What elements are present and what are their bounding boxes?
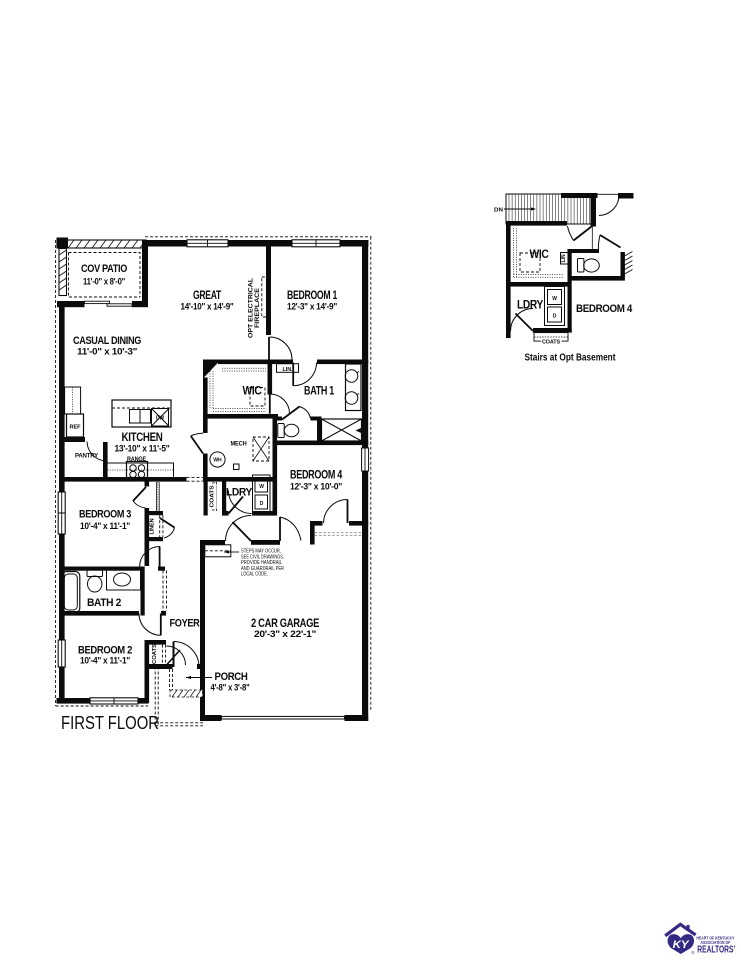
svg-text:PORCH: PORCH [215,671,248,683]
svg-text:COV PATIO: COV PATIO [81,263,128,275]
svg-text:COATS: COATS [210,485,216,508]
svg-text:FIRST FLOOR: FIRST FLOOR [61,713,159,733]
svg-text:LINEN: LINEN [150,518,156,535]
svg-text:13'-10" x 11'-5": 13'-10" x 11'-5" [115,444,170,454]
svg-text:COATS: COATS [542,340,561,346]
svg-text:REALTORS’: REALTORS’ [697,944,735,955]
svg-text:W: W [552,296,557,302]
svg-text:BEDROOM 4: BEDROOM 4 [290,468,343,482]
svg-text:KY: KY [673,939,691,951]
svg-text:10'-4" x 11'-1": 10'-4" x 11'-1" [80,656,130,666]
svg-text:DW: DW [156,416,165,422]
svg-text:BEDROOM 4: BEDROOM 4 [576,303,633,315]
svg-text:RANGE: RANGE [127,457,146,463]
svg-text:14'-10" x 14'-9": 14'-10" x 14'-9" [181,302,234,312]
svg-text:20'-3" x 22'-1": 20'-3" x 22'-1" [254,629,316,639]
svg-text:11'-0" x 10'-3": 11'-0" x 10'-3" [77,347,137,357]
svg-text:DN: DN [494,208,503,214]
svg-text:BEDROOM 1: BEDROOM 1 [287,288,338,302]
svg-text:FIREPLACE: FIREPLACE [254,288,261,328]
svg-text:W: W [259,484,264,490]
svg-text:12'-3" x 14'-9": 12'-3" x 14'-9" [287,302,337,312]
svg-text:LIN: LIN [561,254,567,262]
svg-text:11'-0" x 8'-0": 11'-0" x 8'-0" [83,277,125,287]
svg-text:LIN.: LIN. [283,367,294,373]
svg-text:COATS: COATS [152,643,158,664]
svg-text:2 CAR GARAGE: 2 CAR GARAGE [251,616,319,630]
svg-text:Stairs at Opt Basement: Stairs at Opt Basement [525,352,616,364]
svg-text:WIC: WIC [243,384,263,398]
svg-text:KITCHEN: KITCHEN [122,430,163,444]
svg-text:WH: WH [213,458,222,464]
svg-text:LDRY: LDRY [226,487,253,499]
svg-text:4'-8" x 3'-8": 4'-8" x 3'-8" [211,683,250,693]
svg-text:D: D [260,501,264,507]
svg-text:CASUAL DINING: CASUAL DINING [73,335,141,347]
svg-text:LOCAL CODE.: LOCAL CODE. [241,572,268,578]
svg-text:BATH 1: BATH 1 [304,384,335,398]
svg-text:MECH: MECH [231,442,247,448]
svg-text:10'-4" x 11'-1": 10'-4" x 11'-1" [80,521,130,531]
svg-text:BATH 2: BATH 2 [87,597,121,609]
svg-text:D: D [553,314,557,320]
svg-text:GREAT: GREAT [193,288,222,302]
svg-text:WIC: WIC [530,247,550,261]
svg-text:PANTRY: PANTRY [75,454,98,460]
svg-text:BEDROOM 3: BEDROOM 3 [79,509,131,521]
svg-text:FOYER: FOYER [170,618,200,630]
svg-text:LDRY: LDRY [517,298,543,312]
svg-text:12'-3" x 10'-0": 12'-3" x 10'-0" [290,482,342,492]
svg-text:REF: REF [70,425,81,431]
